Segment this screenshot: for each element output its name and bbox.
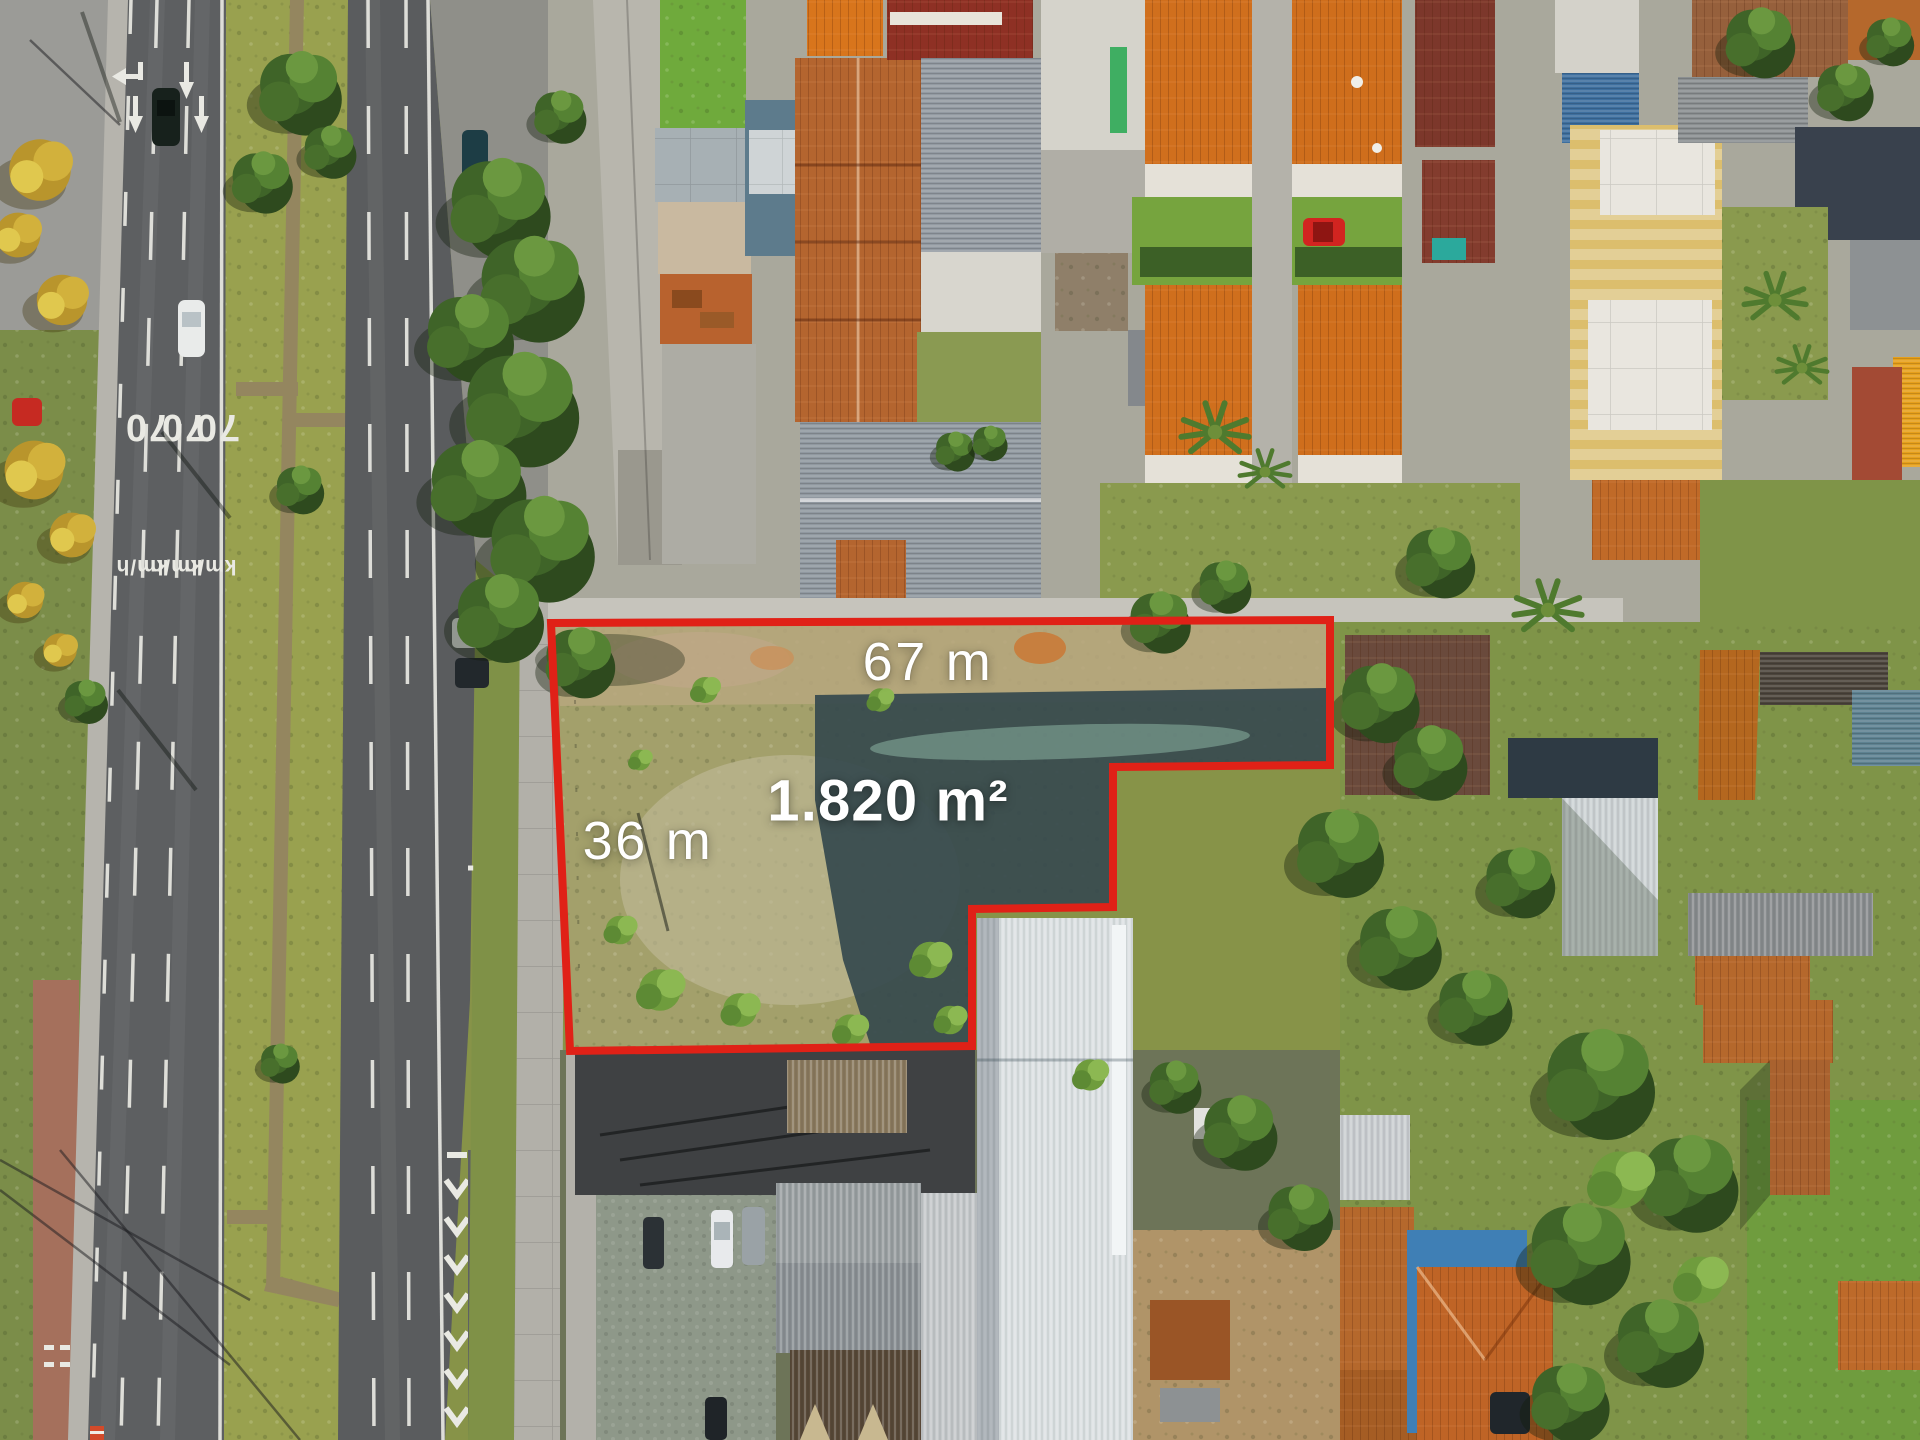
lot-depth-label: 36 m [583,810,714,872]
lot-area-label: 1.820 m² [767,768,1008,835]
condo-blocks [1132,0,1402,483]
dark-suv [152,88,180,146]
parked-car [705,1397,727,1440]
white-car [178,300,205,357]
parked-car [643,1217,664,1269]
speed-marking-3: 70 [194,406,240,448]
red-parked-car [12,398,42,426]
warehouse [977,918,1133,1440]
aerial-scene: 70 70 70 km/h km/h km/h [0,0,1920,1440]
asphalt-yard [575,1050,975,1195]
right-verge-grass [468,560,520,1440]
pool [1432,238,1466,260]
parked-car [742,1207,765,1265]
lot-width-label: 67 m [863,631,994,693]
kmh-marking-3: km/h [183,555,236,578]
yellow-striped-building [1570,125,1722,560]
top-houses [548,0,1920,622]
aerial-photo: 70 70 70 km/h km/h km/h [0,0,1920,1440]
dark-car [455,658,489,688]
